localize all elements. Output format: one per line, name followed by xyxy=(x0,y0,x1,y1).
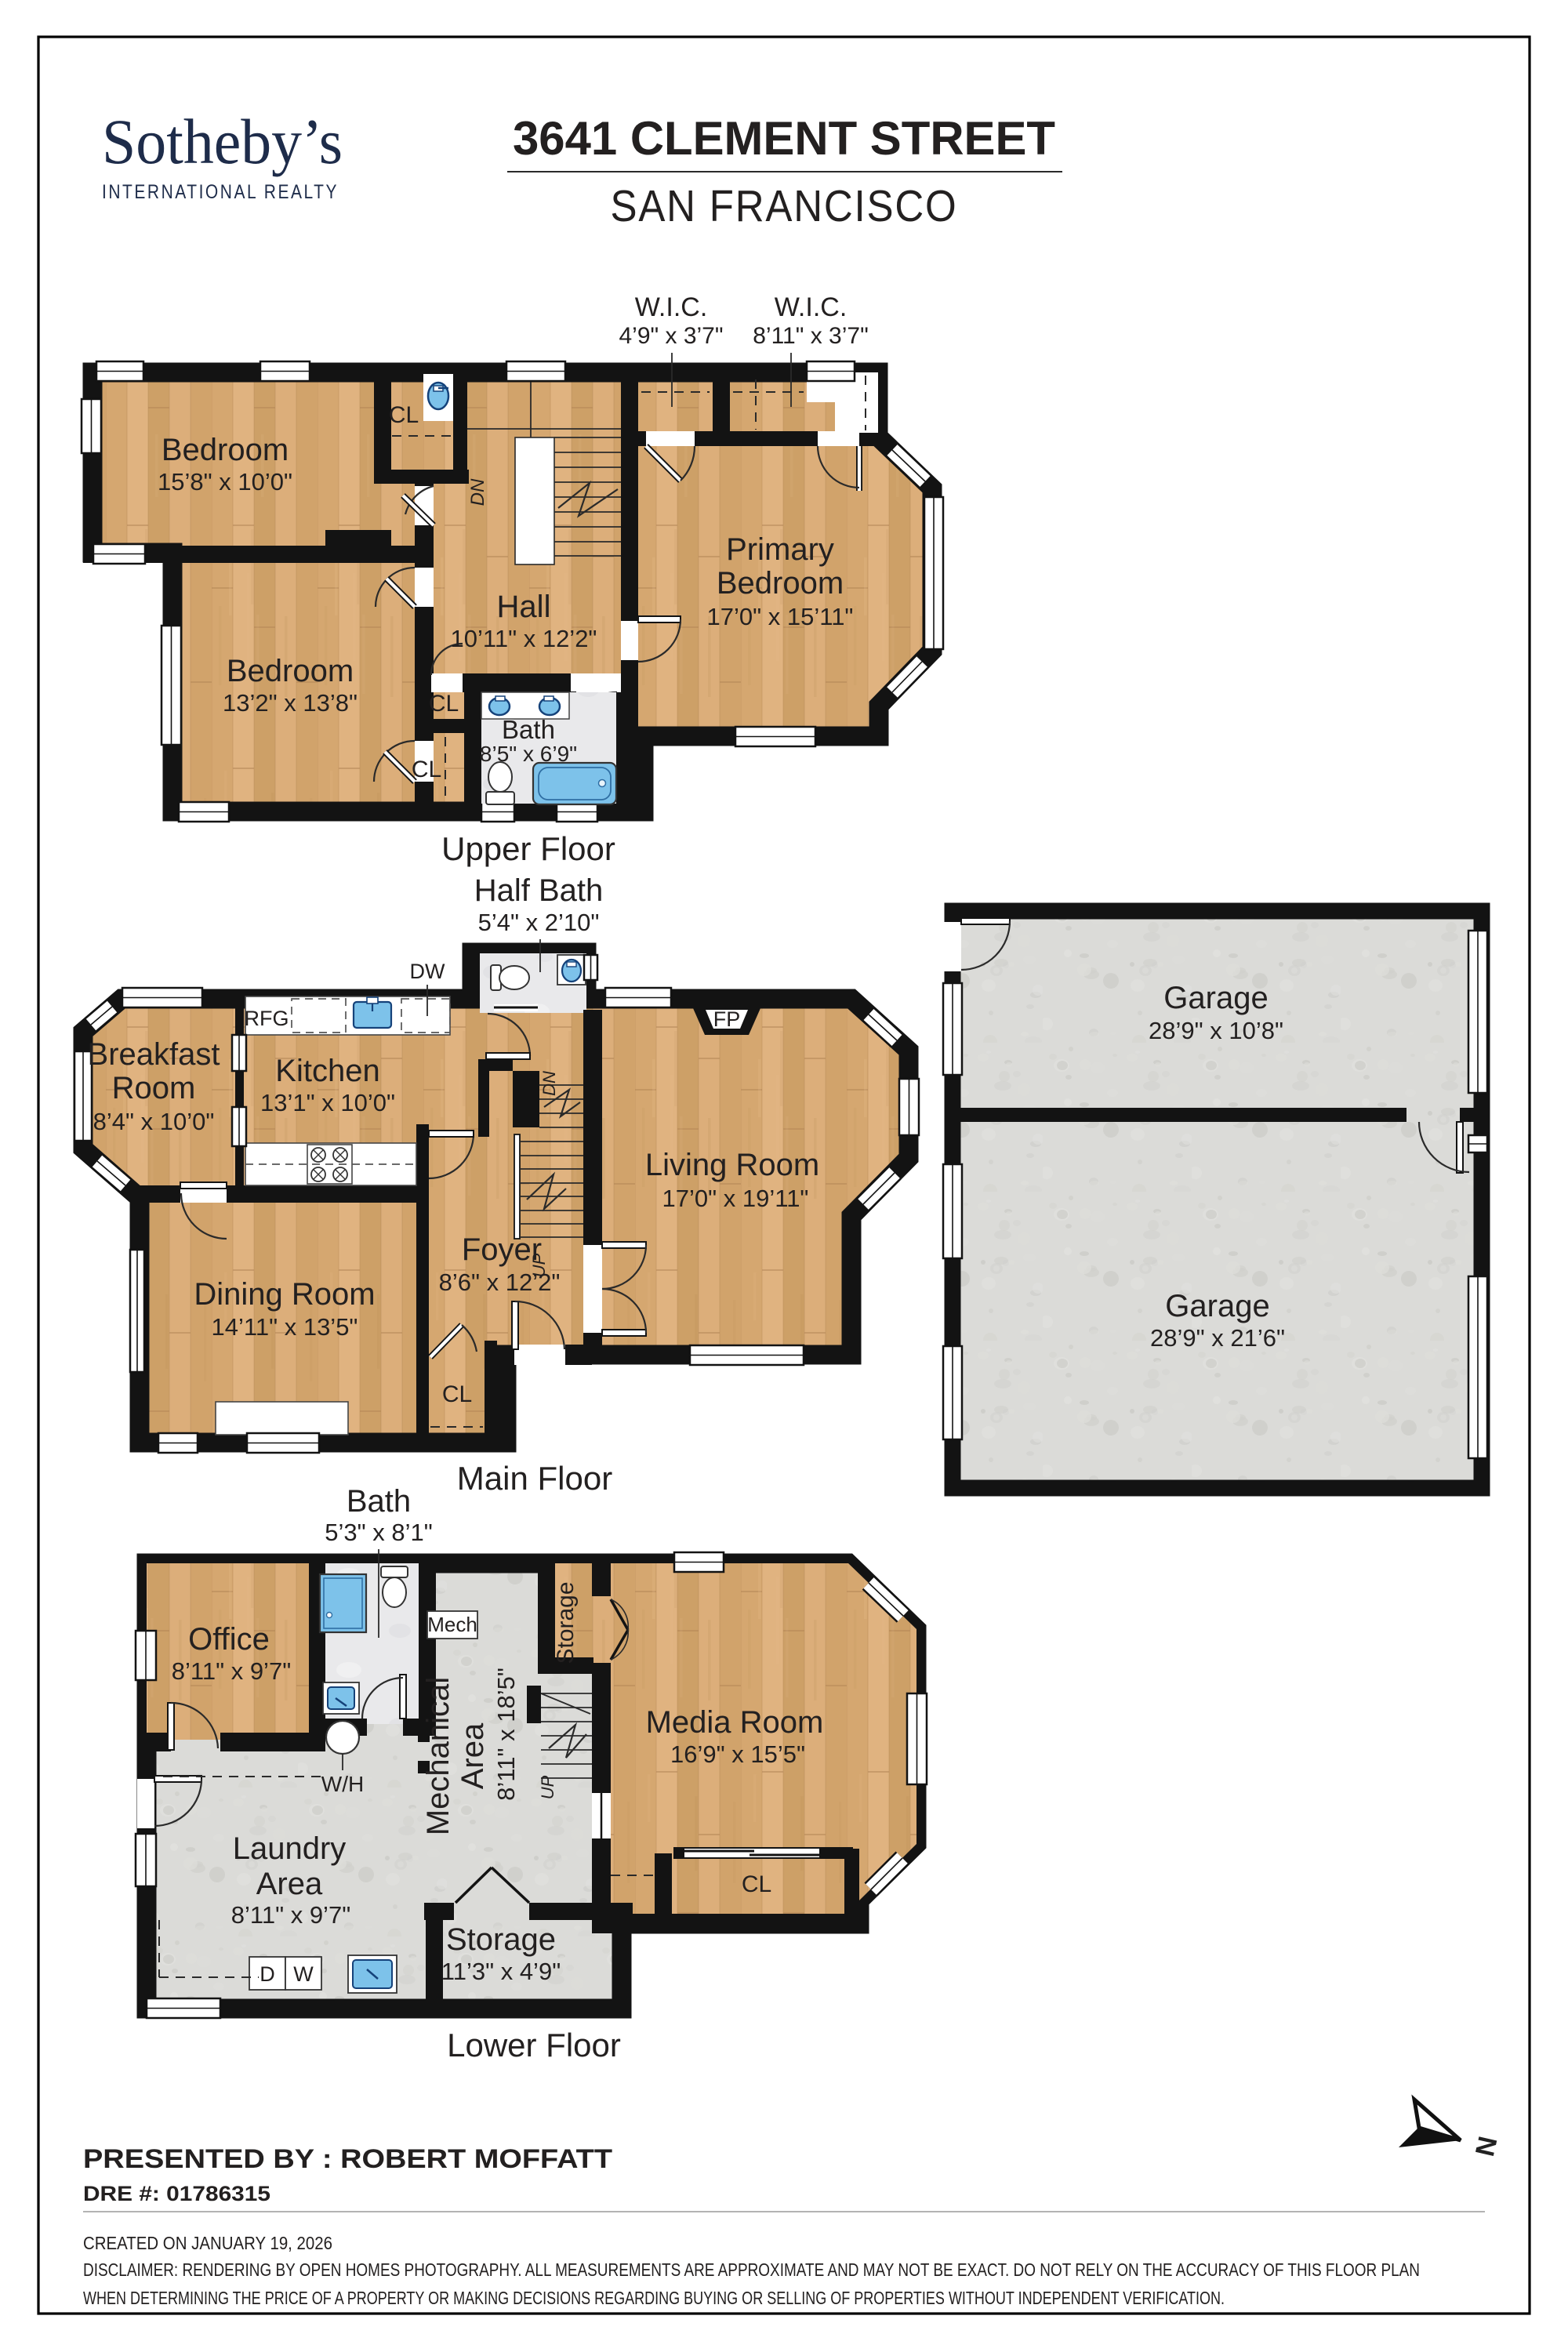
svg-text:Sotheby’s: Sotheby’s xyxy=(102,106,343,177)
svg-text:Hall: Hall xyxy=(497,590,551,624)
svg-text:Area: Area xyxy=(256,1867,323,1901)
svg-text:Bath: Bath xyxy=(502,715,555,744)
svg-text:UP: UP xyxy=(538,1775,557,1799)
svg-text:PRESENTED BY : ROBERT MOFFATT: PRESENTED BY : ROBERT MOFFATT xyxy=(83,2144,612,2174)
svg-text:Office: Office xyxy=(188,1622,270,1657)
svg-text:13’1" x 10’0": 13’1" x 10’0" xyxy=(260,1089,395,1116)
svg-text:CL: CL xyxy=(442,1381,472,1407)
svg-text:INTERNATIONAL REALTY: INTERNATIONAL REALTY xyxy=(102,181,339,203)
svg-text:FP: FP xyxy=(713,1007,741,1031)
svg-text:Upper Floor: Upper Floor xyxy=(441,830,615,867)
svg-text:Bedroom: Bedroom xyxy=(162,433,289,467)
svg-text:UP: UP xyxy=(529,1253,549,1277)
svg-text:17’0" x 15’11": 17’0" x 15’11" xyxy=(707,603,854,630)
svg-text:W.I.C.: W.I.C. xyxy=(775,292,848,322)
svg-text:5’3" x 8’1": 5’3" x 8’1" xyxy=(325,1519,432,1546)
svg-text:8’11" x 9’7": 8’11" x 9’7" xyxy=(172,1657,291,1685)
svg-text:Living Room: Living Room xyxy=(645,1148,819,1182)
svg-text:16’9" x 15’5": 16’9" x 15’5" xyxy=(670,1740,805,1768)
svg-text:28’9" x 21’6": 28’9" x 21’6" xyxy=(1150,1324,1285,1352)
svg-text:5’4" x 2’10": 5’4" x 2’10" xyxy=(478,909,600,936)
svg-text:Media Room: Media Room xyxy=(646,1705,824,1740)
svg-text:DISCLAIMER: RENDERING BY OPEN: DISCLAIMER: RENDERING BY OPEN HOMES PHOT… xyxy=(83,2259,1420,2280)
svg-text:W: W xyxy=(293,1962,314,1986)
svg-text:15’8" x 10’0": 15’8" x 10’0" xyxy=(158,468,292,495)
svg-text:8’4" x 10’0": 8’4" x 10’0" xyxy=(93,1108,215,1135)
svg-text:11’3" x 4’9": 11’3" x 4’9" xyxy=(441,1958,561,1985)
svg-text:Main Floor: Main Floor xyxy=(457,1460,612,1497)
svg-text:Mech: Mech xyxy=(427,1613,477,1636)
svg-text:Lower Floor: Lower Floor xyxy=(447,2027,621,2063)
svg-text:DW: DW xyxy=(410,960,445,983)
svg-text:Mechanical: Mechanical xyxy=(421,1677,456,1835)
svg-text:DRE #: 01786315: DRE #: 01786315 xyxy=(83,2182,270,2205)
svg-text:Bath: Bath xyxy=(347,1484,411,1519)
svg-text:8’11" x 9’7": 8’11" x 9’7" xyxy=(231,1901,350,1929)
svg-text:8’11" x 3’7": 8’11" x 3’7" xyxy=(753,323,869,349)
svg-text:3641 CLEMENT STREET: 3641 CLEMENT STREET xyxy=(513,112,1055,165)
svg-text:8’11" x 18’5": 8’11" x 18’5" xyxy=(492,1668,520,1801)
svg-text:SAN FRANCISCO: SAN FRANCISCO xyxy=(611,181,958,231)
svg-text:RFG: RFG xyxy=(245,1007,289,1030)
svg-text:N: N xyxy=(1469,2133,1503,2158)
svg-text:Bedroom: Bedroom xyxy=(717,566,844,601)
svg-text:Half Bath: Half Bath xyxy=(474,873,604,908)
svg-text:D: D xyxy=(260,1962,275,1986)
svg-text:10’11" x 12’2": 10’11" x 12’2" xyxy=(451,625,597,652)
svg-text:CREATED ON JANUARY 19, 2026: CREATED ON JANUARY 19, 2026 xyxy=(83,2233,332,2253)
svg-text:CL: CL xyxy=(412,757,441,782)
svg-text:W.I.C.: W.I.C. xyxy=(635,292,708,322)
svg-text:CL: CL xyxy=(742,1871,771,1897)
svg-text:4’9" x 3’7": 4’9" x 3’7" xyxy=(619,323,723,349)
svg-text:Storage: Storage xyxy=(446,1922,556,1957)
svg-text:WHEN DETERMINING THE PRICE OF: WHEN DETERMINING THE PRICE OF A PROPERTY… xyxy=(83,2288,1225,2308)
svg-text:Bedroom: Bedroom xyxy=(227,654,354,688)
svg-text:Storage: Storage xyxy=(553,1581,579,1664)
svg-text:Area: Area xyxy=(456,1722,490,1789)
svg-text:DN: DN xyxy=(539,1071,559,1096)
svg-text:Laundry: Laundry xyxy=(233,1831,347,1866)
svg-text:Room: Room xyxy=(112,1071,196,1105)
svg-text:CL: CL xyxy=(389,402,419,428)
svg-text:Breakfast: Breakfast xyxy=(88,1037,220,1072)
svg-text:Garage: Garage xyxy=(1163,981,1268,1015)
svg-text:Dining Room: Dining Room xyxy=(194,1277,375,1312)
svg-text:CL: CL xyxy=(429,691,459,717)
svg-text:28’9" x 10’8": 28’9" x 10’8" xyxy=(1149,1017,1283,1044)
svg-text:13’2" x 13’8": 13’2" x 13’8" xyxy=(223,689,358,717)
svg-text:Garage: Garage xyxy=(1165,1289,1269,1323)
svg-text:DN: DN xyxy=(467,478,488,506)
svg-text:17’0" x 19’11": 17’0" x 19’11" xyxy=(662,1185,809,1212)
svg-text:8’5" x 6’9": 8’5" x 6’9" xyxy=(480,742,577,766)
svg-text:14’11" x 13’5": 14’11" x 13’5" xyxy=(212,1313,358,1341)
svg-text:W/H: W/H xyxy=(321,1772,364,1796)
svg-text:Kitchen: Kitchen xyxy=(275,1054,379,1088)
svg-text:Primary: Primary xyxy=(726,532,834,567)
